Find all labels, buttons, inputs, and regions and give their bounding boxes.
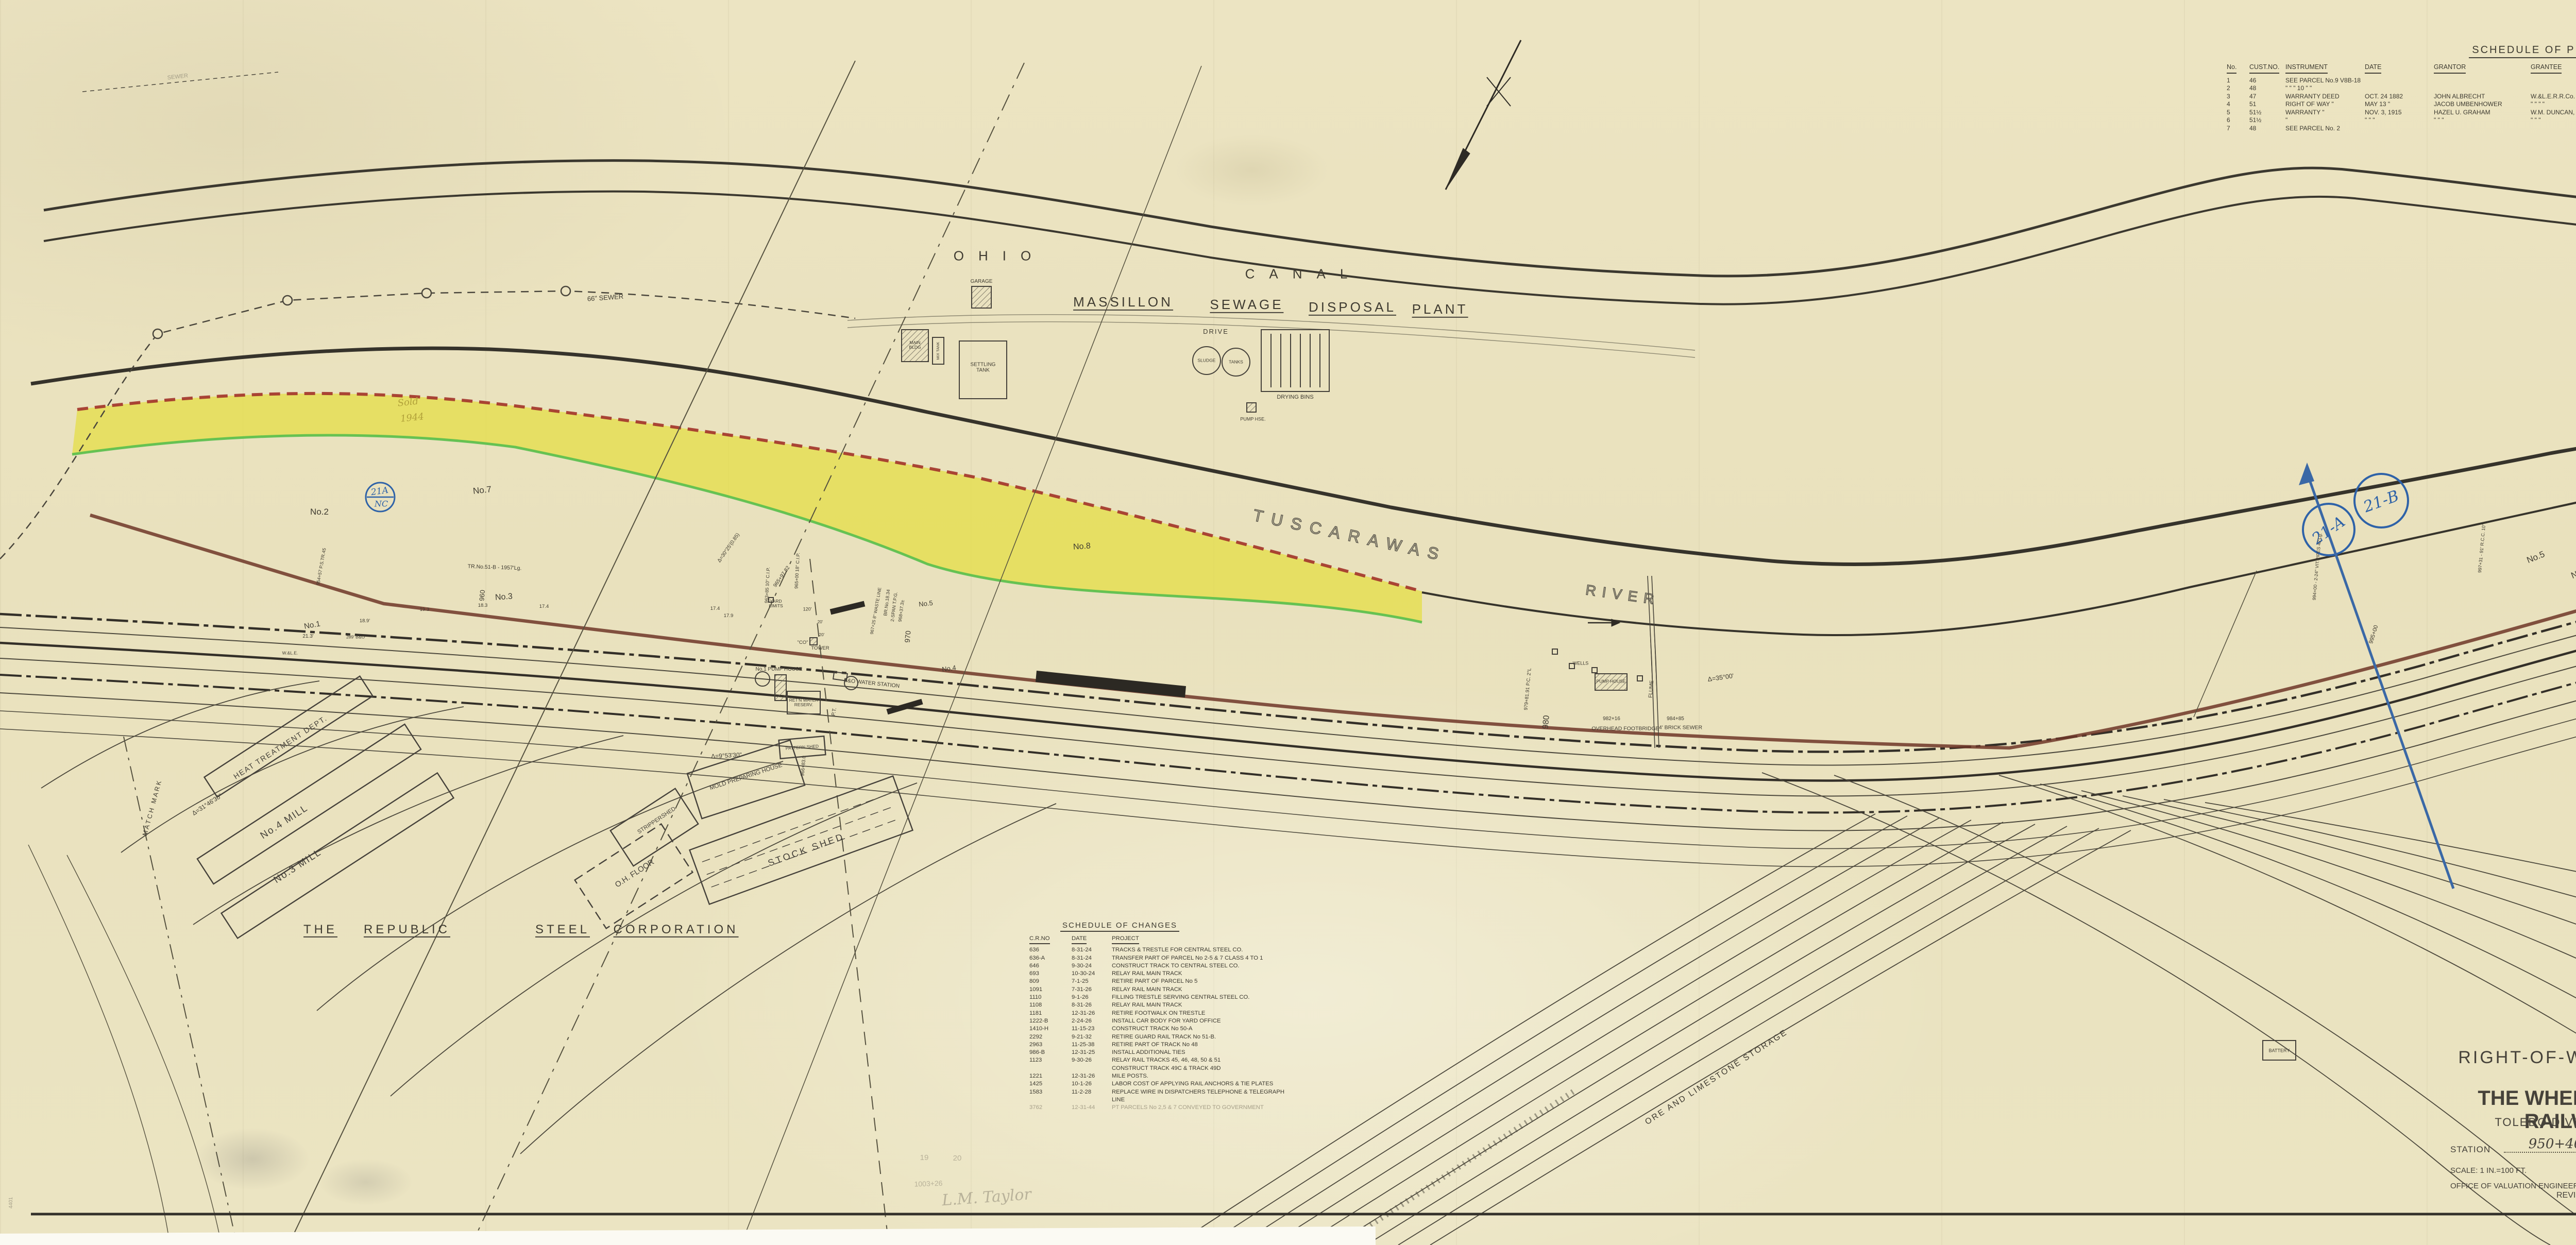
- cell-grantor: [2434, 125, 2529, 133]
- col-project: PROJECT: [1112, 935, 1139, 944]
- cell-grantee: " " " ": [2531, 100, 2576, 109]
- col-instrument: INSTRUMENT: [2285, 63, 2328, 74]
- property-row: 3 47 WARRANTY DEED OCT. 24 1882 JOHN ALB…: [2227, 93, 2576, 101]
- label-dim-174a: 17.4: [539, 604, 549, 609]
- label-sta-970: 970: [904, 630, 912, 643]
- cell-project: PT PARCELS No 2,5 & 7 CONVEYED TO GOVERN…: [1112, 1104, 1289, 1112]
- property-headers: No. CUST.NO. INSTRUMENT DATE GRANTOR GRA…: [2227, 63, 2576, 74]
- cell-cdate: 8-31-24: [1072, 954, 1111, 962]
- changes-row: 636-A 8-31-24 TRANSFER PART OF PARCEL No…: [1029, 954, 1287, 962]
- property-row: 2 48 " " " 10 " ": [2227, 84, 2576, 93]
- cell-cdate: 12-31-25: [1072, 1049, 1111, 1056]
- changes-row: 1583 11-2-28 REPLACE WIRE IN DISPATCHERS…: [1029, 1088, 1287, 1104]
- label-delta-953: Δ=9°53'30": [711, 752, 742, 760]
- cell-project: INSTALL ADDITIONAL TIES: [1112, 1049, 1289, 1056]
- label-republic-the: THE: [303, 923, 337, 937]
- label-main-bldg: MAIN BLDG: [904, 340, 926, 350]
- changes-row: 1108 8-31-26 RELAY RAIL MAIN TRACK: [1029, 1001, 1287, 1009]
- label-brick-sewer: 4' BRICK SEWER: [1659, 725, 1702, 730]
- cell-instrument: " " " 10 " ": [2285, 84, 2363, 93]
- cell-cdate: 2-24-26: [1072, 1017, 1111, 1025]
- cell-grantee: [2531, 77, 2576, 85]
- cell-project: RELAY RAIL MAIN TRACK: [1112, 970, 1289, 978]
- label-pump1: No.1 PUMP HOUSE: [756, 667, 803, 673]
- cell-grantee: [2531, 125, 2576, 133]
- label-sewage: SEWAGE: [1210, 298, 1283, 313]
- label-co: "CO": [798, 640, 808, 645]
- changes-row: 1221 12-31-26 MILE POSTS.: [1029, 1072, 1287, 1080]
- label-steel: STEEL: [535, 923, 590, 937]
- cell-grantor: JACOB UMBENHOWER: [2434, 100, 2529, 109]
- cell-cdate: 9-1-26: [1072, 994, 1111, 1001]
- cell-crno: 1110: [1029, 994, 1071, 1001]
- label-footbridge: OVERHEAD FOOTBRIDGE: [1591, 726, 1659, 731]
- label-parcel-7: No.7: [472, 485, 492, 496]
- cell-grantee: W.M. DUNCAN, RECEIVER: [2531, 109, 2576, 117]
- cell-no: 7: [2227, 125, 2247, 133]
- well-4: [1637, 676, 1642, 681]
- cell-project: TRANSFER PART OF PARCEL No 2-5 & 7 CLASS…: [1112, 954, 1289, 962]
- col-grantee: GRANTEE: [2531, 63, 2562, 74]
- cell-project: RELAY RAIL MAIN TRACK: [1112, 986, 1289, 994]
- ore-yard-tracks: [1175, 814, 2131, 1245]
- label-dim-120: 120': [803, 607, 812, 611]
- cell-cdate: 9-21-32: [1072, 1033, 1111, 1041]
- cell-cdate: 7-31-26: [1072, 986, 1111, 994]
- stripper-shed-building: [611, 789, 698, 866]
- cell-cdate: 9-30-26: [1072, 1056, 1111, 1064]
- cell-crno: 636: [1029, 946, 1071, 954]
- cell-project: CONSTRUCT TRACK TO CENTRAL STEEL CO.: [1112, 962, 1289, 970]
- label-289-bo: 289' B&O: [346, 635, 365, 640]
- cell-instrument: SEE PARCEL No. 2: [2285, 125, 2363, 133]
- retired-track-brown: [90, 515, 2576, 748]
- changes-row: CONSTRUCT TRACK 49C & TRACK 49D: [1029, 1065, 1287, 1072]
- cell-instrument: WARRANTY ": [2285, 109, 2363, 117]
- cell-date: [2365, 77, 2432, 85]
- changes-row: 809 7-1-25 RETIRE PART OF PARCEL No 5: [1029, 978, 1287, 985]
- division-title: TOLEDO DIVISION - MASSILLON BRANCH: [2443, 1116, 2576, 1129]
- cell-cdate: [1072, 1065, 1111, 1072]
- changes-headers: C.R.NO DATE PROJECT: [1029, 935, 1287, 944]
- cell-no: 6: [2227, 116, 2247, 125]
- cell-grantor: HAZEL U. GRAHAM: [2434, 109, 2529, 117]
- pencil-note-19: 19: [920, 1154, 929, 1162]
- cell-crno: 1583: [1029, 1088, 1071, 1104]
- changes-row: 3762 12-31-44 PT PARCELS No 2,5 & 7 CONV…: [1029, 1104, 1287, 1112]
- cell-cust: 51: [2249, 100, 2283, 109]
- cell-cdate: 12-31-26: [1072, 1072, 1111, 1080]
- cell-project: REPLACE WIRE IN DISPATCHERS TELEPHONE & …: [1112, 1088, 1289, 1104]
- cell-project: INSTALL CAR BODY FOR YARD OFFICE: [1112, 1017, 1289, 1025]
- col-crno: C.R.NO: [1029, 935, 1050, 944]
- changes-row: 986-B 12-31-25 INSTALL ADDITIONAL TIES: [1029, 1049, 1287, 1056]
- label-plant: PLANT: [1412, 302, 1468, 318]
- label-sludge: SLUDGE: [1198, 359, 1216, 363]
- label-dim-183: 18.3: [478, 603, 488, 608]
- revised-line: REVISED DECEMBER 31, 1940: [2556, 1191, 2576, 1200]
- label-drying-bins: DRYING BINS: [1277, 395, 1313, 401]
- cell-cust: 51½: [2249, 109, 2283, 117]
- cell-crno: 646: [1029, 962, 1071, 970]
- label-dim-189: 18.9': [360, 619, 370, 624]
- label-drive: DRIVE: [1203, 328, 1229, 335]
- col-grantor: GRANTOR: [2434, 63, 2466, 74]
- garage-building: [972, 286, 991, 308]
- label-pump-house: PUMP HOUSE: [1597, 679, 1626, 684]
- cell-cdate: 11-2-28: [1072, 1088, 1111, 1104]
- well-2: [1592, 668, 1597, 673]
- cell-cdate: 10-30-24: [1072, 970, 1111, 978]
- changes-row: 1091 7-31-26 RELAY RAIL MAIN TRACK: [1029, 986, 1287, 994]
- cell-instrument: SEE PARCEL No.9 V8B-18: [2285, 77, 2363, 85]
- label-corporation: CORPORATION: [614, 923, 739, 937]
- label-battery: BATTERY: [2269, 1048, 2290, 1053]
- label-sta-980: 980: [1541, 715, 1551, 729]
- label-dim-213: 21.3': [302, 634, 313, 640]
- cell-cdate: 7-1-25: [1072, 978, 1111, 985]
- corner-number: 4401: [9, 1197, 14, 1208]
- cell-grantee: [2531, 84, 2576, 93]
- cell-crno: 1222-B: [1029, 1017, 1071, 1025]
- changes-row: 636 8-31-24 TRACKS & TRESTLE FOR CENTRAL…: [1029, 946, 1287, 954]
- col-no: No.: [2227, 63, 2236, 74]
- cell-no: 4: [2227, 100, 2247, 109]
- changes-row: 1110 9-1-26 FILLING TRESTLE SERVING CENT…: [1029, 994, 1287, 1001]
- label-retn-water: RET'N WATER RESERV.: [789, 698, 819, 707]
- cell-crno: 3762: [1029, 1104, 1071, 1112]
- cell-crno: [1029, 1065, 1071, 1072]
- cell-project: RETIRE FOOTWALK ON TRESTLE: [1112, 1010, 1289, 1017]
- label-parcel-8: No.8: [1073, 542, 1091, 552]
- map-type-title: RIGHT-OF-WAY AND TRACK MAP: [2442, 1048, 2576, 1068]
- changes-row: 693 10-30-24 RELAY RAIL MAIN TRACK: [1029, 970, 1287, 978]
- cell-grantor: " " ": [2434, 116, 2529, 125]
- well-3: [1552, 649, 1557, 654]
- cell-instrument: RIGHT OF WAY ": [2285, 100, 2363, 109]
- cell-project: LABOR COST OF APPLYING RAIL ANCHORS & TI…: [1112, 1080, 1289, 1088]
- cell-project: CONSTRUCT TRACK 49C & TRACK 49D: [1112, 1065, 1289, 1072]
- cell-cdate: 8-31-26: [1072, 1001, 1111, 1009]
- label-footbridge-sta: 982+16: [1603, 717, 1620, 722]
- property-row: 6 51½ " " " " " " " " " " " " " " " " " …: [2227, 116, 2576, 125]
- cell-cust: 47: [2249, 93, 2283, 101]
- sheet-borders: [31, 46, 2576, 1214]
- label-garage: GARAGE: [971, 279, 993, 285]
- schedule-of-changes: SCHEDULE OF CHANGES C.R.NO DATE PROJECT …: [1029, 921, 1287, 1112]
- cell-cust: 48: [2249, 125, 2283, 133]
- changes-row: 646 9-30-24 CONSTRUCT TRACK TO CENTRAL S…: [1029, 962, 1287, 970]
- cell-crno: 986-B: [1029, 1049, 1071, 1056]
- cell-no: 2: [2227, 84, 2247, 93]
- pencil-note-20: 20: [953, 1154, 962, 1163]
- label-tower: TOWER: [811, 646, 829, 651]
- property-row: 1 46 SEE PARCEL No.9 V8B-18: [2227, 77, 2576, 85]
- property-title: SCHEDULE OF PROPERTY: [2227, 44, 2576, 56]
- cell-crno: 1091: [1029, 986, 1071, 994]
- cell-grantor: [2434, 77, 2529, 85]
- label-massillon: MASSILLON: [1073, 295, 1173, 311]
- changes-row: 1425 10-1-26 LABOR COST OF APPLYING RAIL…: [1029, 1080, 1287, 1088]
- cell-crno: 1221: [1029, 1072, 1071, 1080]
- north-arrow: [1446, 40, 1521, 190]
- label-wle: W.&L.E.: [282, 651, 298, 656]
- mill-spurs: [41, 681, 1056, 1154]
- parcel-highlight: [72, 394, 1422, 622]
- cell-project: RELAY RAIL MAIN TRACK: [1112, 1001, 1289, 1009]
- changes-row: 2963 11-25-38 RETIRE PART OF TRACK No 48: [1029, 1041, 1287, 1049]
- cell-date: [2365, 84, 2432, 93]
- cell-cdate: 10-1-26: [1072, 1080, 1111, 1088]
- label-pump-hse: PUMP HSE.: [1240, 417, 1265, 421]
- label-settling-tank: SETTLING TANK: [967, 363, 999, 373]
- cell-cust: 51½: [2249, 116, 2283, 125]
- label-mix-tank: MIX TANK: [936, 342, 940, 360]
- cell-cdate: 8-31-24: [1072, 946, 1111, 954]
- cell-cust: 48: [2249, 84, 2283, 93]
- cell-date: [2365, 125, 2432, 133]
- trestle-marks: [831, 604, 1186, 712]
- cell-crno: 1108: [1029, 1001, 1071, 1009]
- cell-crno: 1181: [1029, 1010, 1071, 1017]
- label-republic: REPUBLIC: [364, 923, 450, 937]
- label-dim-174b: 17.4: [710, 606, 720, 611]
- cell-project: RETIRE PART OF PARCEL No 5: [1112, 978, 1289, 985]
- label-wells: WELLS: [1573, 661, 1589, 666]
- cell-cust: 46: [2249, 77, 2283, 85]
- property-row: 5 51½ WARRANTY " NOV. 3, 1915 HAZEL U. G…: [2227, 109, 2576, 117]
- cell-project: MILE POSTS.: [1112, 1072, 1289, 1080]
- label-dim-20a: 20': [818, 620, 823, 624]
- label-dim-20b: 20': [819, 633, 824, 637]
- cell-cdate: 9-30-24: [1072, 962, 1111, 970]
- changes-row: 2292 9-21-32 RETIRE GUARD RAIL TRACK No …: [1029, 1033, 1287, 1041]
- cell-date: MAY 13 ": [2365, 100, 2432, 109]
- cell-crno: 1123: [1029, 1056, 1071, 1064]
- changes-row: 1410-H 11-15-23 CONSTRUCT TRACK No 50-A: [1029, 1025, 1287, 1033]
- cell-date: NOV. 3, 1915: [2365, 109, 2432, 117]
- label-disposal: DISPOSAL: [1309, 300, 1396, 316]
- cell-project: FILLING TRESTLE SERVING CENTRAL STEEL CO…: [1112, 994, 1289, 1001]
- cell-no: 3: [2227, 93, 2247, 101]
- cell-project: TRACKS & TRESTLE FOR CENTRAL STEEL CO.: [1112, 946, 1289, 954]
- cell-no: 5: [2227, 109, 2247, 117]
- map-sheet: SCHEDULE OF PROPERTY No. CUST.NO. INSTRU…: [0, 0, 2576, 1245]
- pump1-building: [775, 675, 786, 701]
- property-row: 4 51 RIGHT OF WAY " MAY 13 " JACOB UMBEN…: [2227, 100, 2576, 109]
- col-custno: CUST.NO.: [2249, 63, 2279, 74]
- revised-label: REVISED DECEMBER 31,: [2556, 1191, 2576, 1200]
- cell-grantor: [2434, 84, 2529, 93]
- cell-project: CONSTRUCT TRACK No 50-A: [1112, 1025, 1289, 1033]
- co-tower-building: [810, 638, 817, 645]
- property-row: 7 48 SEE PARCEL No. 2: [2227, 125, 2576, 133]
- cell-date: OCT. 24 1882: [2365, 93, 2432, 101]
- cell-project: RETIRE GUARD RAIL TRACK No 51-B.: [1112, 1033, 1289, 1041]
- cell-crno: 1410-H: [1029, 1025, 1071, 1033]
- changes-row: 1181 12-31-26 RETIRE FOOTWALK ON TRESTLE: [1029, 1010, 1287, 1017]
- cell-cdate: 12-31-26: [1072, 1010, 1111, 1017]
- ohio-canal-lines: [44, 161, 2576, 304]
- pump-house-small: [1247, 403, 1256, 412]
- label-parcel-5-left: No.5: [919, 600, 934, 608]
- cell-crno: 2963: [1029, 1041, 1071, 1049]
- cell-crno: 2292: [1029, 1033, 1071, 1041]
- cell-cdate: 11-25-38: [1072, 1041, 1111, 1049]
- pencil-note-station: 1003+26: [914, 1180, 942, 1188]
- label-sold: Sold: [397, 397, 419, 408]
- cell-crno: 809: [1029, 978, 1071, 985]
- cell-cdate: 11-15-23: [1072, 1025, 1111, 1033]
- scale-label: SCALE: 1 IN.=100 FT.: [2450, 1166, 2527, 1175]
- label-sta-960: 960: [478, 590, 486, 602]
- changes-row: 1123 9-30-26 RELAY RAIL TRACKS 45, 46, 4…: [1029, 1056, 1287, 1064]
- label-canal: CANAL: [1245, 267, 1362, 281]
- cell-instrument: WARRANTY DEED: [2285, 93, 2363, 101]
- cell-no: 1: [2227, 77, 2247, 85]
- changes-title-text: SCHEDULE OF CHANGES: [1060, 921, 1179, 932]
- station-label: STATION: [2450, 1145, 2490, 1155]
- cell-cdate: 12-31-44: [1072, 1104, 1111, 1112]
- cell-grantee: W.&L.E.R.R.Co.: [2531, 93, 2576, 101]
- cell-grantor: JOHN ALBRECHT: [2434, 93, 2529, 101]
- changes-title: SCHEDULE OF CHANGES: [1029, 921, 1287, 930]
- label-brick-sewer-sta: 984+85: [1667, 717, 1684, 722]
- office-label: OFFICE OF VALUATION ENGINEER,: [2450, 1182, 2576, 1190]
- property-title-text: SCHEDULE OF PROPERTY: [2469, 44, 2576, 58]
- col-cdate: DATE: [1072, 935, 1087, 944]
- col-date: DATE: [2365, 63, 2381, 74]
- cell-project: RELAY RAIL TRACKS 45, 46, 48, 50 & 51: [1112, 1056, 1289, 1064]
- station-from-value: 950+40: [2504, 1136, 2576, 1153]
- schedule-of-property: SCHEDULE OF PROPERTY No. CUST.NO. INSTRU…: [2227, 44, 2576, 132]
- label-ohio: OHIO: [954, 249, 1045, 263]
- railroad-structures: [755, 598, 2296, 1060]
- label-dim-179: 17.9: [724, 613, 734, 619]
- cell-crno: 1425: [1029, 1080, 1071, 1088]
- cell-instrument: ": [2285, 116, 2363, 125]
- label-parcel-3: No.3: [495, 592, 513, 602]
- label-parcel-2: No.2: [310, 507, 329, 517]
- label-dim-193: 19.3: [420, 607, 430, 612]
- cell-date: " " ": [2365, 116, 2432, 125]
- cell-grantee: " " ": [2531, 116, 2576, 125]
- changes-row: 1222-B 2-24-26 INSTALL CAR BODY FOR YARD…: [1029, 1017, 1287, 1025]
- cell-crno: 636-A: [1029, 954, 1071, 962]
- stamp-21a-nc-bottom: NC: [375, 500, 388, 509]
- cell-project: RETIRE PART OF TRACK No 48: [1112, 1041, 1289, 1049]
- label-tanks: TANKS: [1229, 360, 1243, 365]
- cell-crno: 693: [1029, 970, 1071, 978]
